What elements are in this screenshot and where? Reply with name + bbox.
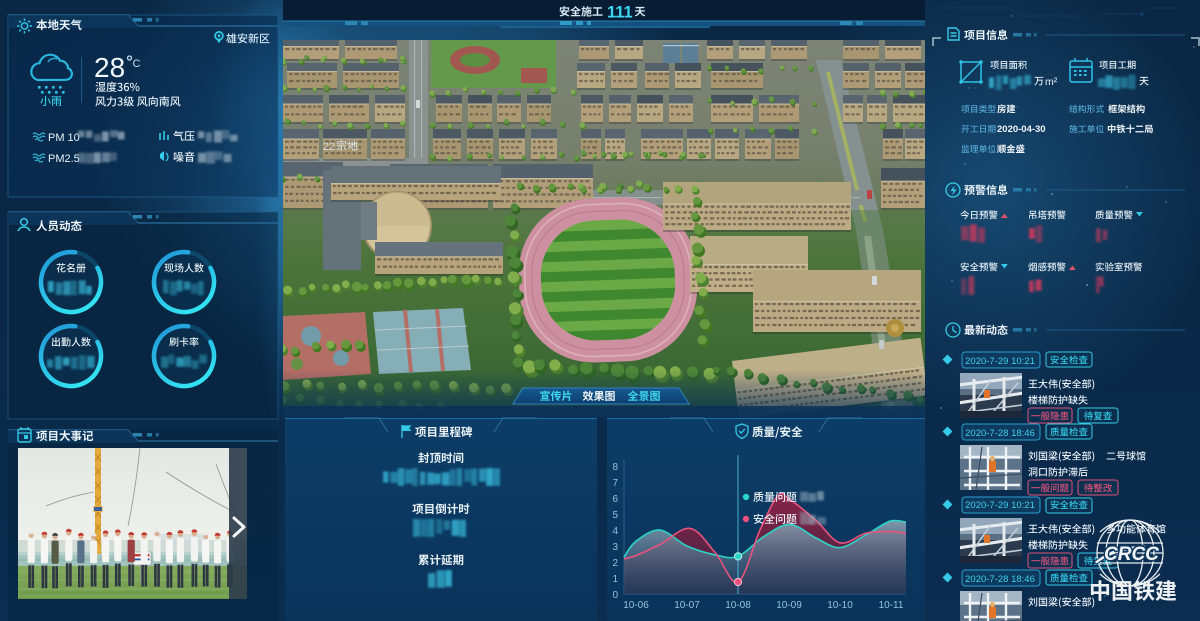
svg-text:10-10: 10-10: [827, 600, 853, 611]
svg-text:0: 0: [612, 590, 618, 601]
svg-text:CRCC: CRCC: [1104, 544, 1159, 565]
svg-text:10-07: 10-07: [674, 600, 700, 611]
svg-text:2020-7-29 10:21: 2020-7-29 10:21: [965, 500, 1035, 511]
svg-text:1: 1: [612, 574, 618, 585]
svg-text:7: 7: [612, 478, 618, 489]
svg-text:4: 4: [612, 526, 618, 537]
svg-text:m²: m²: [1045, 76, 1058, 88]
svg-text:10-09: 10-09: [776, 600, 802, 611]
svg-text:3: 3: [612, 542, 618, 553]
svg-text:2: 2: [612, 558, 618, 569]
svg-text:8: 8: [612, 462, 618, 473]
svg-text:6: 6: [612, 494, 618, 505]
svg-text:PM 10: PM 10: [48, 132, 80, 144]
svg-text:2020-7-28 18:46: 2020-7-28 18:46: [965, 428, 1035, 439]
svg-text:2020-04-30: 2020-04-30: [997, 124, 1046, 135]
svg-text:5: 5: [612, 510, 618, 521]
svg-text:10-06: 10-06: [623, 600, 649, 611]
svg-text:2020-7-29 10:21: 2020-7-29 10:21: [965, 356, 1035, 367]
svg-text:10-08: 10-08: [725, 600, 751, 611]
svg-text:C: C: [133, 58, 141, 70]
svg-text:10-11: 10-11: [879, 600, 904, 611]
svg-text:PM2.5: PM2.5: [48, 153, 80, 165]
svg-text:111: 111: [607, 4, 633, 22]
svg-text:28: 28: [94, 52, 125, 83]
svg-text:2020-7-28 18:46: 2020-7-28 18:46: [965, 574, 1035, 585]
